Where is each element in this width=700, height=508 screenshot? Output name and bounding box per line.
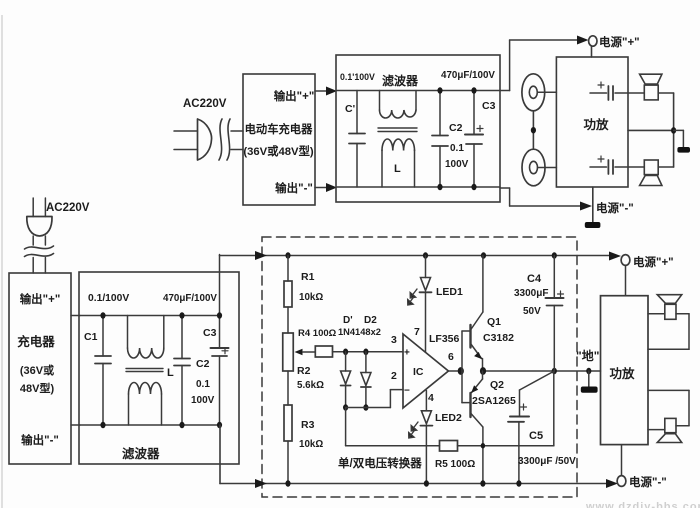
svg-text:48V型): 48V型) [20,381,55,395]
svg-text:C4: C4 [527,273,542,285]
svg-text:R2: R2 [297,365,311,377]
svg-text:AC220V: AC220V [183,98,227,110]
svg-text:单/双电压转换器: 单/双电压转换器 [338,456,422,470]
svg-text:(36V或48V型): (36V或48V型) [243,144,314,158]
svg-text:功放: 功放 [609,366,635,381]
svg-text:C1: C1 [84,331,98,343]
svg-text:R4 100Ω: R4 100Ω [298,328,337,339]
svg-text:Q1: Q1 [487,316,501,328]
svg-text:4: 4 [428,392,434,404]
svg-text:功放: 功放 [583,117,609,132]
svg-text:2SA1265: 2SA1265 [472,395,516,407]
svg-text:0.1: 0.1 [450,143,464,154]
svg-text:滤波器: 滤波器 [122,446,160,461]
svg-text:输出"+": 输出"+" [274,89,315,103]
svg-text:充电器: 充电器 [17,334,55,349]
svg-text:3300μF: 3300μF [514,288,548,299]
svg-text:"地": "地" [576,348,599,363]
svg-text:−: − [404,386,410,397]
svg-text:R1: R1 [301,271,315,283]
svg-text:2: 2 [391,370,397,382]
svg-text:L: L [394,163,401,175]
svg-text:(36V或: (36V或 [20,363,54,377]
svg-text:0.1/100V: 0.1/100V [88,293,129,304]
svg-text:C3: C3 [203,327,217,339]
svg-text:LED2: LED2 [435,412,462,424]
svg-text:50V: 50V [523,306,541,317]
svg-text:电源"+": 电源"+" [599,35,640,49]
svg-text:10kΩ: 10kΩ [299,292,323,303]
svg-text:C2: C2 [449,122,463,134]
svg-text:LF356: LF356 [429,333,460,345]
svg-text:C3182: C3182 [483,332,514,344]
svg-text:电源"-": 电源"-" [629,475,667,489]
svg-text:电动车充电器: 电动车充电器 [245,122,313,136]
svg-text:L: L [167,367,174,379]
svg-text:IC: IC [413,366,424,378]
svg-text:6: 6 [448,351,454,363]
svg-text:0.1'100V: 0.1'100V [340,72,375,82]
svg-text:5.6kΩ: 5.6kΩ [297,380,324,391]
svg-text:D2: D2 [364,315,377,326]
svg-text:C3: C3 [482,100,496,112]
svg-text:10kΩ: 10kΩ [299,439,323,450]
svg-text:3: 3 [391,334,397,346]
svg-text:Q2: Q2 [490,379,504,391]
svg-text:电源"-": 电源"-" [596,201,634,215]
svg-text:0.1: 0.1 [196,379,210,390]
svg-text:R3: R3 [301,419,315,431]
svg-text:470μF/100V: 470μF/100V [163,293,217,304]
svg-text:LED1: LED1 [436,286,463,298]
svg-text:输出"-": 输出"-" [275,181,313,195]
svg-text:AC220V: AC220V [46,202,90,214]
svg-text:输出"+": 输出"+" [20,292,61,306]
svg-text:D': D' [343,315,353,326]
svg-text:7: 7 [414,326,420,338]
svg-text:1N4148x2: 1N4148x2 [338,327,381,337]
svg-text:+: + [404,348,410,359]
svg-text:C': C' [345,103,355,115]
svg-text:电源"+": 电源"+" [633,255,674,269]
svg-text:输出"-": 输出"-" [21,433,59,447]
svg-text:R5 100Ω: R5 100Ω [435,459,475,470]
svg-text:C5: C5 [529,430,543,442]
svg-text:3300μF /50V: 3300μF /50V [518,456,576,467]
svg-text:470μF/100V: 470μF/100V [441,70,495,81]
svg-text:C2: C2 [196,358,210,370]
svg-text:滤波器: 滤波器 [382,73,419,88]
svg-text:100V: 100V [191,395,215,406]
svg-text:www.dzdiy-bbs.com: www.dzdiy-bbs.com [585,501,700,508]
svg-text:100V: 100V [445,159,469,170]
